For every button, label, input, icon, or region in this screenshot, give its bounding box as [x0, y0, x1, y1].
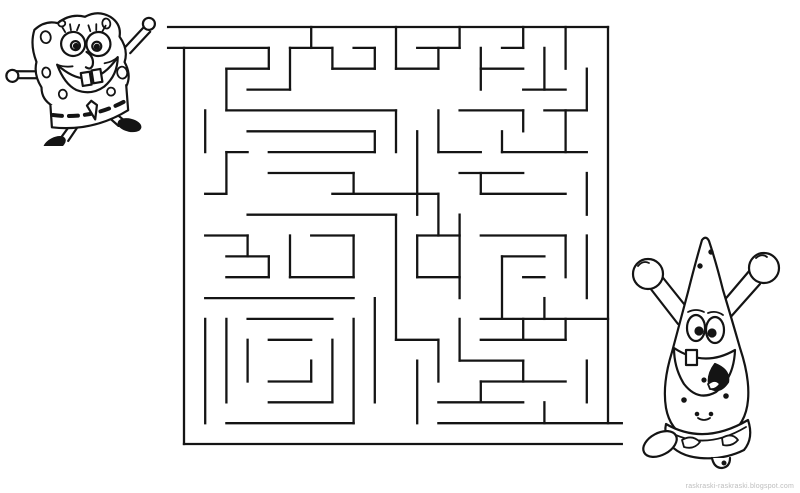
- spongebob-image: [4, 4, 172, 146]
- patrick-image: [616, 232, 800, 470]
- watermark-url: raskraski-raskraski.blogspot.com: [686, 483, 794, 490]
- maze-worksheet: raskraski-raskraski.blogspot.com: [0, 0, 800, 493]
